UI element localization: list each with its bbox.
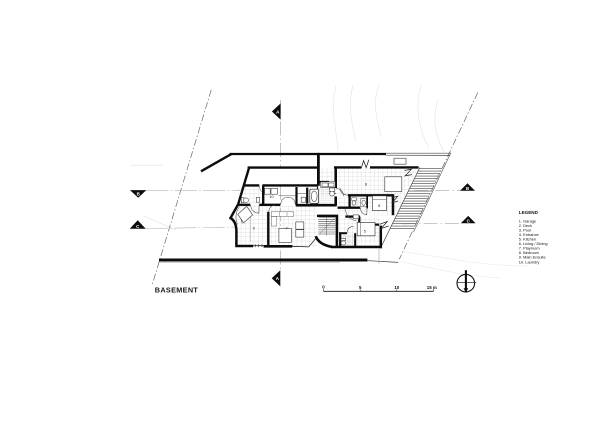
svg-text:LEGEND: LEGEND	[519, 210, 539, 215]
svg-text:9: 9	[253, 227, 255, 231]
svg-text:10: 10	[394, 285, 399, 290]
svg-text:10. Laundry: 10. Laundry	[519, 259, 540, 264]
svg-text:10: 10	[269, 195, 273, 199]
svg-text:6: 6	[365, 183, 367, 187]
svg-text:7: 7	[286, 226, 288, 230]
svg-text:5: 5	[359, 285, 362, 290]
svg-text:BASEMENT: BASEMENT	[155, 286, 199, 295]
svg-text:8: 8	[378, 204, 380, 208]
svg-text:5: 5	[364, 229, 366, 233]
svg-text:0: 0	[322, 285, 325, 290]
svg-text:15 m: 15 m	[427, 285, 437, 290]
